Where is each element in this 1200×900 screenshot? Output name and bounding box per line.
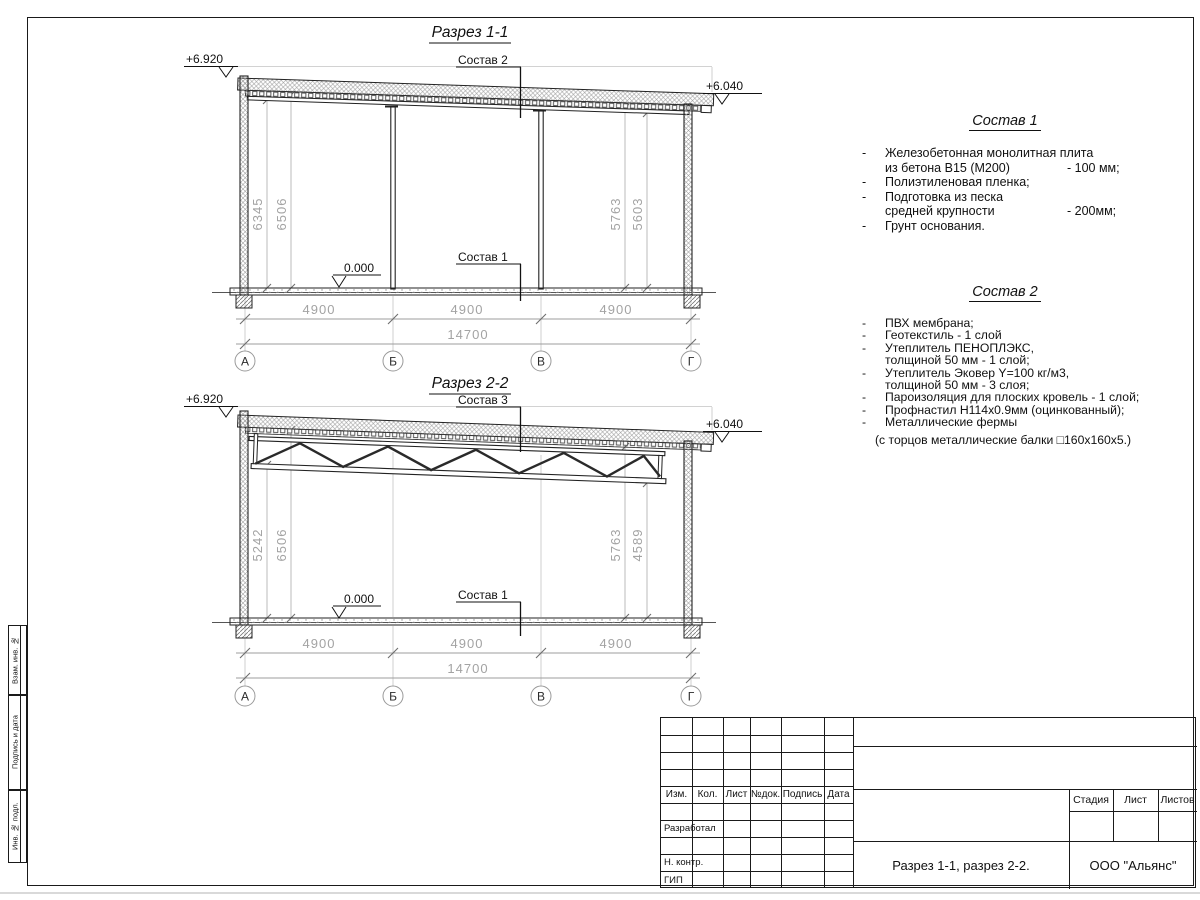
s1-column-B — [385, 107, 398, 290]
s2-dim-4589: 4589 — [630, 529, 645, 562]
bullet-dash — [855, 354, 885, 366]
s1-elevation-left-mark — [184, 67, 238, 78]
s2-axis-V: В — [537, 690, 545, 704]
s2-roof-truss — [236, 415, 714, 485]
bullet-dash: - — [855, 367, 885, 379]
stamp-label: Подпись и дата — [9, 696, 21, 789]
s2-wall-A — [240, 411, 248, 625]
s1-axis-bubbles: А Б В Г — [235, 351, 701, 371]
tb-row-developed: Разработал — [661, 820, 723, 837]
list-item: - Пароизоляция для плоских кровель - 1 с… — [855, 391, 1155, 403]
s2-span3: 4900 — [600, 636, 633, 651]
list-item: - Железобетонная монолитная плита — [855, 146, 1155, 161]
s2-elevation-left-mark — [184, 407, 238, 418]
bullet-dash: - — [855, 404, 885, 416]
composition-2-heading: Состав 2 — [855, 283, 1155, 302]
bullet-dash: - — [855, 391, 885, 403]
s2-span2: 4900 — [451, 636, 484, 651]
title-block: Изм. Кол. Лист №док. Подпись Дата Разраб… — [660, 717, 1196, 888]
s1-span1: 4900 — [303, 302, 336, 317]
bullet-dash: - — [855, 190, 885, 205]
list-item: из бетона В15 (М200) - 100 мм; — [855, 161, 1155, 176]
s2-axis-bubbles: А Б В Г — [235, 686, 701, 706]
item-text: Подготовка из песка — [885, 190, 1003, 205]
s1-elev-right: +6.040 — [706, 79, 743, 93]
stamp-inv-podl: Инв. № подл. — [8, 790, 27, 863]
bullet-dash: - — [855, 317, 885, 329]
composition-2-list: Состав 2 - ПВХ мембрана; - Геотекстиль -… — [855, 283, 1155, 447]
s1-span3: 4900 — [600, 302, 633, 317]
s2-dim-5763: 5763 — [608, 529, 623, 562]
s2-title: Разрез 2-2 — [432, 375, 509, 392]
s1-floor-label: Состав 1 — [458, 250, 508, 264]
s1-roof-label: Состав 2 — [458, 53, 508, 67]
tb-col-izm: Изм. — [661, 786, 692, 803]
s1-dim-6506: 6506 — [274, 198, 289, 231]
tb-sheets: Листов — [1158, 789, 1197, 811]
s1-elev-left: +6.920 — [186, 52, 223, 66]
s1-axis-A: А — [241, 355, 249, 369]
list-item: - Металлические фермы — [855, 416, 1155, 428]
section-2-2: Разрез 2-2 +6.920 +6.040 Состав 3 Состав… — [184, 375, 762, 706]
list-item: - Грунт основания. — [855, 219, 1155, 234]
tb-sheet: Лист — [1113, 789, 1158, 811]
s1-axis-V: В — [537, 355, 545, 369]
s2-zero-label: 0.000 — [344, 592, 374, 606]
bullet-dash: - — [855, 342, 885, 354]
s1-wall-A — [240, 76, 248, 295]
composition-2-footnote: (с торцов металлические балки □160х160х5… — [855, 433, 1155, 447]
bullet-dash: - — [855, 175, 885, 190]
s1-zero-mark — [332, 275, 381, 287]
tb-col-ndok: №док. — [750, 786, 781, 803]
bullet-dash: - — [855, 146, 885, 161]
s1-foundation-right — [684, 295, 700, 308]
stamp-label: Инв. № подл. — [9, 791, 21, 862]
tb-col-list: Лист — [723, 786, 750, 803]
tb-col-data: Дата — [824, 786, 853, 803]
tb-row-gip: ГИП — [661, 871, 723, 889]
s2-foundation-left — [236, 625, 252, 638]
s2-elev-right: +6.040 — [706, 417, 743, 431]
s2-axis-A: А — [241, 690, 249, 704]
stamp-vzam-inv: Взам. инв. № — [8, 625, 27, 695]
list-item: - Полиэтиленовая пленка; — [855, 175, 1155, 190]
tb-org-name: ООО "Альянс" — [1069, 841, 1197, 889]
s2-floor-label: Состав 1 — [458, 588, 508, 602]
s2-dim-6506: 6506 — [274, 529, 289, 562]
item-text: толщиной 50 мм - 1 слой; — [885, 354, 1030, 366]
s1-floor-slab — [230, 288, 702, 295]
list-item: толщиной 50 мм - 1 слой; — [855, 354, 1155, 366]
bullet-dash — [855, 161, 885, 176]
list-item: - Геотекстиль - 1 слой — [855, 329, 1155, 341]
s2-zero-mark — [332, 606, 381, 618]
tb-doc-title: Разрез 1-1, разрез 2-2. — [853, 841, 1069, 889]
item-text: Металлические фермы — [885, 416, 1017, 428]
s2-roof-label: Состав 3 — [458, 393, 508, 407]
bullet-dash: - — [855, 416, 885, 428]
item-value: - 200мм; — [1067, 204, 1155, 219]
s1-title: Разрез 1-1 — [432, 24, 509, 41]
list-item: - Подготовка из песка — [855, 190, 1155, 205]
drawing-sheet: Разрез 1-1 +6.920 +6.040 Состав 2 Состав… — [0, 0, 1200, 900]
s2-foundation-right — [684, 625, 700, 638]
s2-total: 14700 — [447, 661, 488, 676]
section-1-1: Разрез 1-1 +6.920 +6.040 Состав 2 Состав… — [184, 24, 762, 371]
s1-axis-G: Г — [688, 355, 695, 369]
item-text: Грунт основания. — [885, 219, 985, 234]
bullet-dash: - — [855, 219, 885, 234]
bullet-dash — [855, 379, 885, 391]
item-value: - 100 мм; — [1067, 161, 1155, 176]
list-item: средней крупности - 200мм; — [855, 204, 1155, 219]
s2-floor-slab — [230, 618, 702, 625]
item-text: Пароизоляция для плоских кровель - 1 сло… — [885, 391, 1139, 403]
tb-stage: Стадия — [1069, 789, 1113, 811]
s1-wall-G — [684, 104, 692, 295]
bullet-dash — [855, 204, 885, 219]
s2-axis-G: Г — [688, 690, 695, 704]
s1-dim-5603: 5603 — [630, 198, 645, 231]
s1-zero-label: 0.000 — [344, 261, 374, 275]
s1-dim-6345: 6345 — [250, 198, 265, 231]
s1-axis-B: Б — [389, 355, 397, 369]
s1-column-V — [533, 111, 546, 290]
s2-span1: 4900 — [303, 636, 336, 651]
item-text: из бетона В15 (М200) — [885, 161, 1010, 176]
s2-wall-G — [684, 441, 692, 625]
composition-1-list: Состав 1 - Железобетонная монолитная пли… — [855, 112, 1155, 234]
s1-span2: 4900 — [451, 302, 484, 317]
bullet-dash: - — [855, 329, 885, 341]
tb-row-ncontr: Н. контр. — [661, 854, 723, 871]
s2-dim-5242: 5242 — [250, 529, 265, 562]
item-text: Полиэтиленовая пленка; — [885, 175, 1030, 190]
item-text: средней крупности — [885, 204, 995, 219]
composition-1-heading: Состав 1 — [855, 112, 1155, 131]
stamp-label: Взам. инв. № — [9, 626, 21, 694]
tb-col-podpis: Подпись — [781, 786, 824, 803]
item-text: Геотекстиль - 1 слой — [885, 329, 1002, 341]
tb-col-kol: Кол. — [692, 786, 723, 803]
s2-axis-B: Б — [389, 690, 397, 704]
s2-elev-left: +6.920 — [186, 392, 223, 406]
s1-roof — [237, 78, 713, 115]
s1-foundation-left — [236, 295, 252, 308]
item-text: Железобетонная монолитная плита — [885, 146, 1093, 161]
s1-total: 14700 — [447, 327, 488, 342]
s1-dim-5763: 5763 — [608, 198, 623, 231]
stamp-podpis-data: Подпись и дата — [8, 695, 27, 790]
s1-vertical-dim-lines — [267, 95, 647, 288]
